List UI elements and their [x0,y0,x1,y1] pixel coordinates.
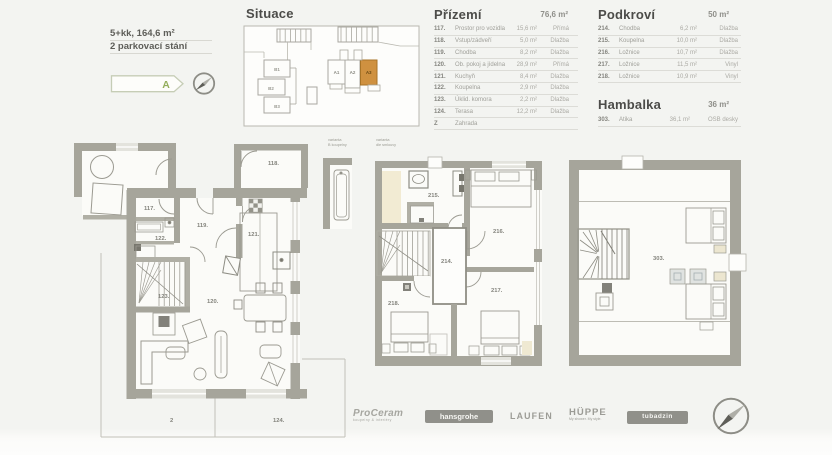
svg-text:121.: 121. [248,232,260,238]
svg-text:216.: 216. [493,229,505,235]
svg-text:A1: A1 [334,70,340,75]
svg-text:B koupelny: B koupelny [328,143,347,147]
svg-text:varianta: varianta [328,138,342,142]
svg-text:118.: 118. [268,161,279,167]
svg-text:A3: A3 [366,70,372,75]
svg-text:214.: 214. [441,259,453,265]
svg-text:B3: B3 [274,104,280,109]
svg-text:A2: A2 [350,70,356,75]
svg-text:120.: 120. [207,299,219,305]
svg-text:215.: 215. [428,193,440,199]
svg-text:122.: 122. [155,236,167,242]
svg-text:B1: B1 [274,67,280,72]
svg-text:dle smlouvy: dle smlouvy [376,143,396,147]
svg-text:123.: 123. [158,294,170,300]
svg-text:218.: 218. [388,301,400,307]
svg-text:124.: 124. [273,418,285,424]
svg-text:2: 2 [170,418,173,424]
svg-text:217.: 217. [491,288,503,294]
svg-text:117.: 117. [144,206,155,212]
svg-text:varianta: varianta [376,138,390,142]
svg-text:119.: 119. [197,223,208,229]
svg-text:B2: B2 [268,86,274,91]
svg-text:303.: 303. [653,256,665,262]
svg-text:A: A [162,79,170,91]
